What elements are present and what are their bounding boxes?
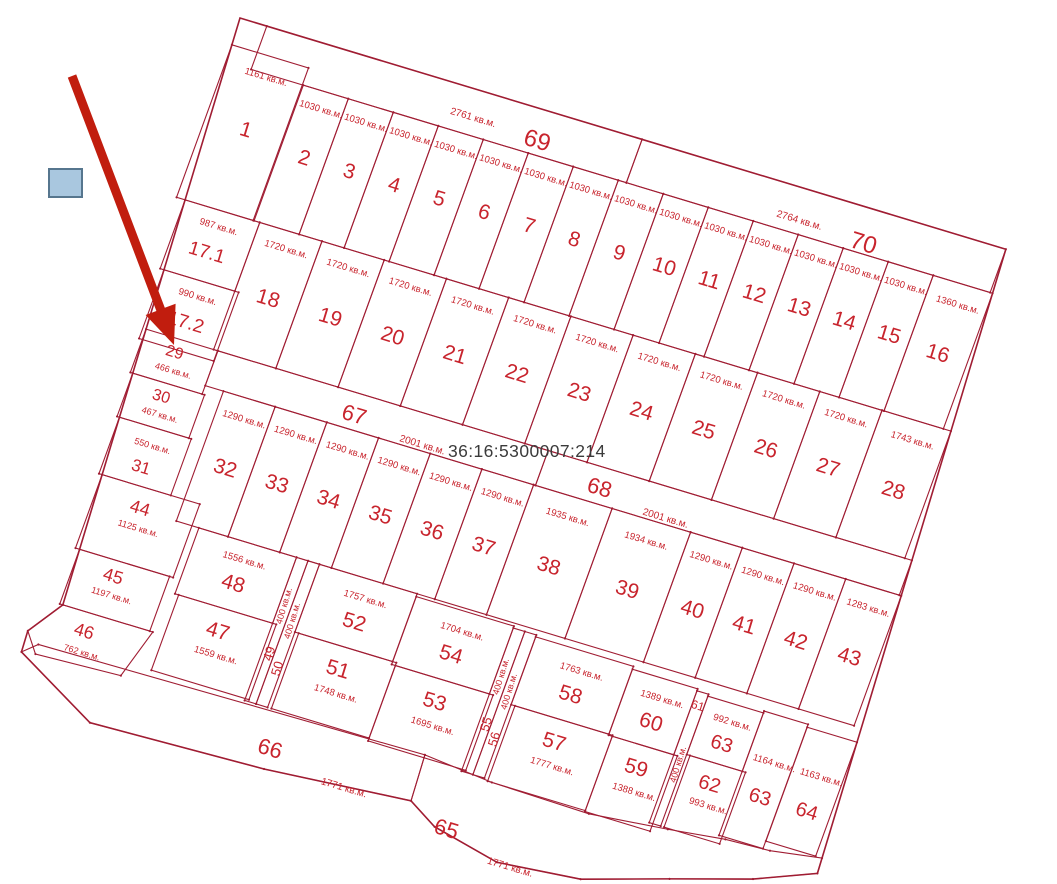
plot-53: 1695 кв.м.53 (367, 663, 495, 773)
plot-64: 1163 кв.м.64 (765, 724, 859, 860)
plot-7: 1030 кв.м.7 (478, 149, 575, 305)
plot-37: 1290 кв.м.37 (433, 466, 535, 619)
plot-area: 1125 кв.м. (117, 518, 160, 540)
plot-number: 49 (260, 644, 279, 662)
plot-area: 1290 кв.м. (688, 549, 734, 572)
plot-number: 32 (211, 454, 240, 483)
plot-number: 15 (875, 320, 904, 349)
vertex-dot (266, 706, 269, 709)
plot-area: 550 кв.м. (133, 436, 172, 456)
plot-15: 1030 кв.м.15 (838, 258, 935, 414)
plot-68: 2001 кв.м.68 (534, 449, 913, 598)
vertex-dot (198, 527, 201, 530)
vertex-dot (295, 556, 298, 559)
plot-number: 31 (129, 455, 153, 479)
plot-59: 1388 кв.м.59 (584, 734, 679, 834)
plot-number: 35 (366, 501, 395, 530)
plot-number: 38 (534, 552, 563, 581)
plot-6: 1030 кв.м.6 (433, 136, 530, 292)
plot-area: 467 кв.м. (141, 405, 180, 425)
plot-number: 26 (751, 435, 780, 464)
plot-area: 1360 кв.м. (935, 293, 981, 316)
pointer-arrow-icon (68, 74, 176, 345)
vertex-dot (818, 390, 821, 393)
plot-area: 1388 кв.м. (611, 781, 657, 804)
plot-41: 1290 кв.м.41 (694, 544, 796, 697)
plot-boundary (488, 705, 613, 812)
plot-area: 1030 кв.м. (478, 152, 524, 175)
plot-boundary (719, 709, 808, 851)
vertex-dot (138, 337, 141, 340)
vertex-dot (807, 723, 810, 726)
plot-60: 1389 кв.м.60 (607, 667, 699, 758)
vertex-dot (694, 353, 697, 356)
plot-area: 1720 кв.м. (636, 351, 682, 374)
vertex-dot (204, 384, 207, 387)
vertex-dot (390, 663, 393, 666)
plot-area: 1934 кв.м. (623, 529, 669, 552)
plot-14: 1030 кв.м.14 (793, 245, 890, 401)
plot-4: 1030 кв.м.4 (343, 109, 440, 265)
plot-area: 1030 кв.м. (883, 275, 929, 298)
plot-number: 24 (627, 397, 656, 426)
plot-area: 1290 кв.м. (324, 439, 370, 462)
plot-number: 8 (565, 227, 583, 252)
plot-11: 1030 кв.м.11 (658, 204, 755, 360)
plot-number: 5 (430, 186, 448, 211)
vertex-dot (198, 503, 201, 506)
plot-number: 23 (565, 378, 594, 407)
plot-number: 57 (540, 728, 569, 757)
plot-52: 1757 кв.м.52 (294, 562, 419, 664)
vertex-dot (694, 676, 697, 679)
plot-area: 762 кв.м. (63, 642, 102, 662)
plot-35: 1290 кв.м.35 (330, 434, 432, 587)
plot-area: 2761 кв.м. (449, 106, 497, 130)
plot-number: 41 (730, 611, 759, 640)
plot-area: 1743 кв.м. (889, 429, 935, 452)
vertex-dot (58, 603, 61, 606)
plot-26: 1720 кв.м.26 (710, 369, 821, 522)
plot-area: 1695 кв.м. (409, 715, 455, 738)
plot-number: 42 (781, 626, 810, 655)
plot-32: 1290 кв.м.32 (175, 388, 277, 541)
vertex-dot (383, 259, 386, 262)
vertex-dot (648, 821, 651, 824)
plot-number: 70 (847, 227, 880, 261)
vertex-dot (243, 699, 246, 702)
plot-number: 3 (340, 159, 358, 184)
plot-number: 37 (469, 532, 498, 561)
vertex-dot (724, 838, 727, 841)
vertex-dot (632, 334, 635, 337)
plot-area: 1720 кв.м. (450, 294, 496, 317)
plot-area: 1030 кв.м. (613, 193, 659, 216)
plot-area: 990 кв.м. (177, 286, 218, 308)
plot-3: 1030 кв.м.3 (298, 95, 395, 251)
plot-boundary (99, 416, 191, 496)
overlay-layer (68, 74, 176, 345)
plot-21: 1720 кв.м.21 (399, 275, 510, 428)
vertex-dot (168, 575, 171, 578)
vertex-dot (321, 240, 324, 243)
plot-31: 550 кв.м.31 (98, 415, 193, 498)
vertex-dot (769, 849, 772, 852)
vertex-dot (175, 520, 178, 523)
plot-number: 47 (203, 617, 232, 646)
vertex-dot (367, 740, 370, 743)
plot-area: 1290 кв.м. (376, 455, 422, 478)
plot-area: 1290 кв.м. (792, 580, 838, 603)
plot-number: 52 (340, 608, 369, 637)
plot-number: 33 (262, 470, 291, 499)
plot-63b: 1164 кв.м.63 (718, 708, 810, 853)
plot-area: 1771 кв.м. (320, 776, 368, 800)
plot-boundary (368, 664, 493, 771)
plot-number: 66 (255, 733, 286, 764)
cadastral-number-label: 36:16:5300007:214 (448, 441, 606, 462)
plot-number: 44 (128, 496, 153, 521)
plot-number: 68 (584, 472, 615, 503)
plot-9: 1030 кв.м.9 (568, 177, 665, 333)
plot-area: 1777 кв.м. (529, 755, 575, 778)
plot-17_1: 987 кв.м.17.1 (159, 197, 261, 293)
vertex-dot (237, 291, 240, 294)
plot-42: 1290 кв.м.42 (745, 560, 847, 713)
plot-number: 64 (793, 798, 821, 825)
plot-number: 51 (323, 655, 352, 684)
plot-area: 1290 кв.м. (740, 565, 786, 588)
plot-number: 14 (830, 307, 859, 336)
plot-1: 1161 кв.м.1 (175, 41, 310, 225)
plot-number: 43 (835, 643, 864, 672)
plot-38: 1935 кв.м.38 (485, 481, 613, 642)
vertex-dot (564, 637, 567, 640)
plot-number: 9 (610, 240, 628, 265)
plot-area: 1283 кв.м. (845, 597, 891, 620)
vertex-dot (642, 661, 645, 664)
vertex-dot (129, 371, 132, 374)
plot-area: 1720 кв.м. (574, 332, 620, 355)
plot-44: 1125 кв.м.44 (74, 472, 201, 580)
plot-10: 1030 кв.м.10 (613, 190, 710, 346)
plot-area: 1290 кв.м. (273, 424, 319, 447)
plot-number: 40 (678, 595, 707, 624)
vertex-dot (718, 834, 721, 837)
plot-number: 30 (150, 386, 172, 407)
vertex-dot (318, 563, 321, 566)
plot-36: 1290 кв.м.36 (382, 450, 484, 603)
vertex-dot (485, 613, 488, 616)
plot-area: 987 кв.м. (198, 216, 239, 238)
plot-area: 1030 кв.м. (568, 180, 614, 203)
plot-40: 1290 кв.м.40 (642, 529, 744, 682)
plot-number: 67 (339, 399, 370, 430)
plot-number: 63 (746, 784, 774, 811)
vertex-dot (74, 547, 77, 550)
plot-area: 1290 кв.м. (428, 471, 474, 494)
vertex-dot (175, 196, 178, 199)
plot-number: 2 (295, 145, 313, 170)
plot-area: 1720 кв.м. (263, 238, 309, 261)
plot-number: 53 (420, 688, 449, 717)
plot-number: 62 (696, 771, 724, 798)
vertex-dot (174, 592, 177, 595)
vertex-dot (745, 692, 748, 695)
plot-number: 19 (316, 303, 345, 332)
plot-area: 1030 кв.м. (388, 125, 434, 148)
plot-number: 11 (695, 266, 723, 294)
plot-number: 54 (436, 640, 465, 669)
plot-area: 1771 кв.м. (486, 856, 534, 880)
plot-area: 1720 кв.м. (761, 388, 807, 411)
vertex-dot (248, 698, 251, 701)
plot-area: 2001 кв.м. (398, 433, 446, 457)
plot-number: 18 (254, 284, 283, 313)
plot-43: 1283 кв.м.43 (797, 575, 902, 729)
plot-area: 1559 кв.м. (193, 644, 239, 667)
plot-12: 1030 кв.м.12 (703, 217, 800, 373)
vertex-dot (433, 598, 436, 601)
vertex-dot (523, 630, 526, 633)
plot-number: 16 (923, 339, 952, 368)
plot-number: 17.1 (186, 237, 227, 268)
vertex-dot (507, 296, 510, 299)
vertex-dot (270, 707, 273, 710)
vertex-dot (190, 438, 193, 441)
vertex-dot (34, 653, 37, 656)
vertex-dot (744, 771, 747, 774)
plot-number: 13 (785, 293, 814, 322)
vertex-dot (150, 669, 153, 672)
plot-area: 1030 кв.м. (838, 261, 884, 284)
plot-area: 466 кв.м. (154, 361, 193, 381)
cadastral-plan-image: 1161 кв.м.11030 кв.м.21030 кв.м.31030 кв… (0, 0, 1057, 884)
vertex-dot (307, 67, 310, 70)
plot-area: 1030 кв.м. (703, 220, 749, 243)
vertex-dot (756, 371, 759, 374)
plot-number: 21 (440, 341, 469, 370)
plot-number: 27 (814, 453, 843, 482)
plot-area: 1030 кв.м. (793, 247, 839, 270)
plot-area: 1720 кв.м. (823, 407, 869, 430)
vertex-dot (116, 415, 119, 418)
plot-number: 6 (475, 200, 493, 225)
plot-boundary (766, 725, 857, 858)
plot-number: 60 (636, 708, 665, 737)
plot-area: 1030 кв.м. (748, 234, 794, 257)
plot-boundary (271, 632, 396, 739)
plot-5: 1030 кв.м.5 (388, 122, 485, 278)
plot-number: 10 (650, 252, 679, 281)
plot-area: 1935 кв.м. (545, 506, 591, 529)
plot-number: 1 (237, 117, 255, 142)
plot-number: 7 (520, 213, 538, 238)
plot-number: 22 (502, 359, 531, 388)
plot-2: 1030 кв.м.2 (253, 81, 350, 237)
plot-area: 992 кв.м. (712, 712, 753, 734)
plot-area: 1030 кв.м. (658, 207, 704, 230)
plot-18: 1720 кв.м.18 (212, 219, 323, 372)
plot-number: 58 (556, 681, 585, 710)
vertex-dot (172, 576, 175, 579)
plot-number: 34 (314, 485, 343, 514)
plot-number: 59 (622, 754, 651, 783)
vertex-dot (307, 559, 310, 562)
plot-number: 25 (689, 416, 718, 445)
plot-area: 993 кв.м. (688, 795, 729, 817)
plot-22: 1720 кв.м.22 (461, 294, 572, 447)
plot-39: 1934 кв.м.39 (564, 505, 692, 666)
plot-area: 1197 кв.м. (90, 585, 133, 607)
plot-number: 29 (163, 342, 185, 363)
vertex-dot (258, 221, 261, 224)
plot-33: 1290 кв.м.33 (227, 403, 329, 556)
plot-area: 1030 кв.м. (433, 139, 479, 162)
plot-47: 1559 кв.м.47 (150, 592, 278, 702)
plot-number: 12 (740, 280, 769, 309)
plot-area: 1720 кв.м. (325, 257, 371, 280)
vertex-dot (625, 181, 628, 184)
vertex-dot (632, 665, 635, 668)
vertex-dot (853, 724, 856, 727)
highlight-swatch (48, 168, 83, 198)
vertex-dot (752, 878, 755, 881)
vertex-dot (668, 878, 671, 881)
plot-19: 1720 кв.м.19 (274, 238, 385, 391)
vertex-dot (797, 708, 800, 711)
plot-20: 1720 кв.м.20 (337, 256, 448, 409)
plot-number: 36 (417, 516, 446, 545)
vertex-dot (395, 661, 398, 664)
plot-number: 63 (708, 730, 736, 757)
plot-area: 1030 кв.м. (343, 112, 389, 135)
plot-number: 46 (72, 619, 97, 644)
plot-number: 28 (879, 476, 908, 505)
vertex-dot (416, 592, 419, 595)
plot-boundary (151, 594, 276, 701)
plot-number: 20 (378, 322, 407, 351)
vertex-dot (445, 277, 448, 280)
vertex-dot (159, 267, 162, 270)
plot-area: 1030 кв.м. (523, 166, 569, 189)
plot-16: 1360 кв.м.16 (883, 272, 994, 433)
plot-25: 1720 кв.м.25 (648, 350, 759, 503)
plot-8: 1030 кв.м.8 (523, 163, 620, 319)
plot-13: 1030 кв.м.13 (748, 231, 845, 387)
vertex-dot (98, 472, 101, 475)
plot-27: 1720 кв.м.27 (772, 388, 883, 541)
plot-area: 1030 кв.м. (298, 98, 344, 121)
plot-area: 1720 кв.м. (512, 313, 558, 336)
plot-number: 45 (101, 564, 126, 589)
vertex-dot (203, 393, 206, 396)
plot-number: 48 (219, 569, 248, 598)
plot-area: 1164 кв.м. (752, 752, 797, 775)
vertex-dot (649, 830, 652, 833)
vertex-dot (718, 842, 721, 845)
vertex-dot (255, 703, 258, 706)
plot-number: 4 (385, 173, 403, 198)
plot-34: 1290 кв.м.34 (278, 419, 380, 572)
plot-area: 1720 кв.м. (387, 276, 433, 299)
vertex-dot (989, 291, 992, 294)
plot-number: 55 (477, 715, 496, 733)
plot-area: 1720 кв.м. (699, 369, 745, 392)
plot-area: 1748 кв.м. (313, 682, 359, 705)
plot-area: 1290 кв.м. (221, 408, 267, 431)
plot-area: 1290 кв.м. (479, 486, 525, 509)
plot-number: 39 (613, 575, 642, 604)
vertex-dot (659, 825, 662, 828)
plot-area: 2001 кв.м. (641, 507, 689, 531)
plot-58: 1763 кв.м.58 (510, 634, 635, 736)
plot-area: 1163 кв.м. (798, 766, 843, 789)
